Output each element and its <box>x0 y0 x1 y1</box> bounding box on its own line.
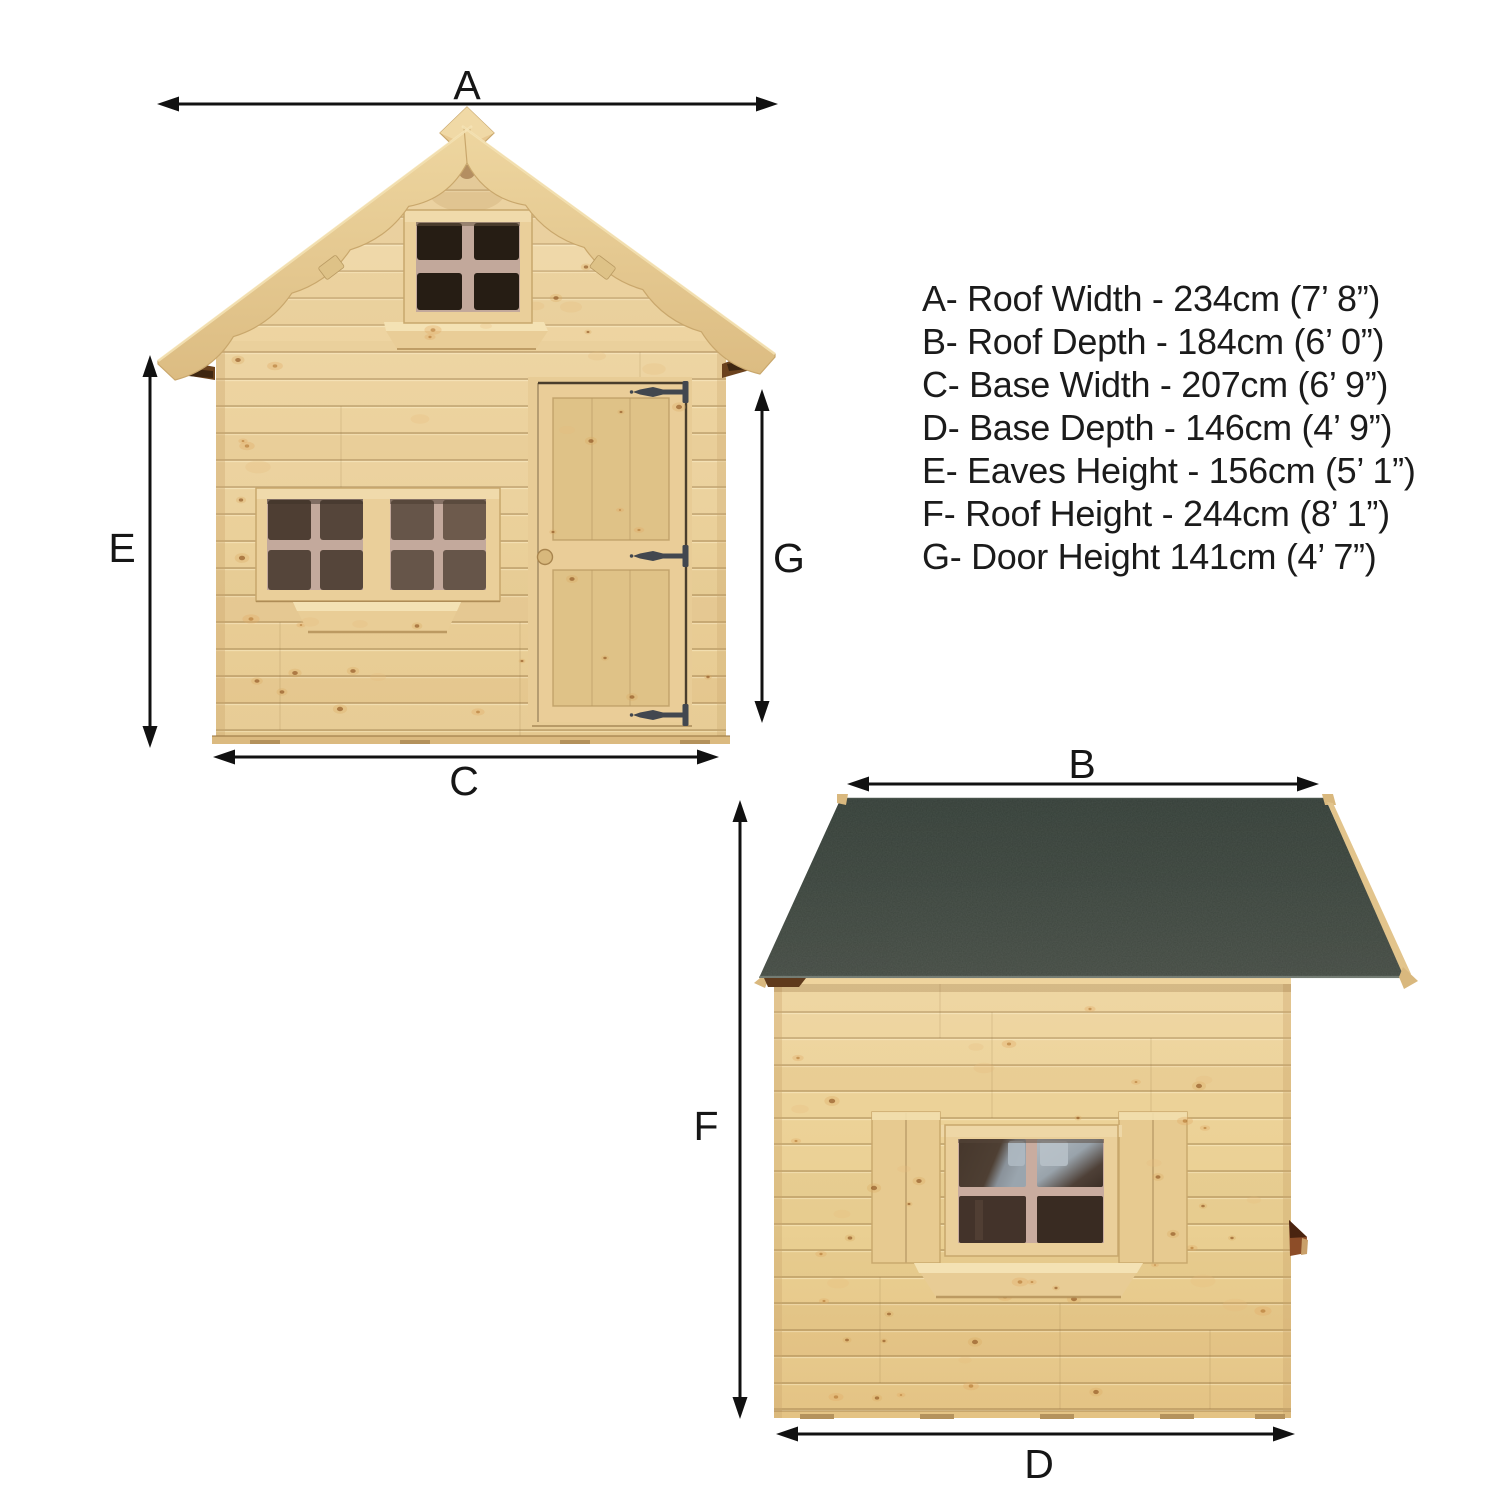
svg-text:E- Eaves Height - 156cm (5’ 1”: E- Eaves Height - 156cm (5’ 1”) <box>922 450 1416 491</box>
svg-text:A: A <box>453 62 481 108</box>
svg-text:D- Base Depth - 146cm (4’ 9”): D- Base Depth - 146cm (4’ 9”) <box>922 407 1392 448</box>
svg-text:D: D <box>1024 1441 1054 1487</box>
svg-text:B: B <box>1068 741 1095 787</box>
svg-text:G: G <box>773 535 805 581</box>
svg-text:F- Roof Height - 244cm (8’ 1”): F- Roof Height - 244cm (8’ 1”) <box>922 493 1390 534</box>
svg-text:A- Roof Width - 234cm (7’ 8”): A- Roof Width - 234cm (7’ 8”) <box>922 278 1380 319</box>
svg-text:C: C <box>449 758 479 804</box>
svg-text:B- Roof Depth - 184cm (6’ 0”): B- Roof Depth - 184cm (6’ 0”) <box>922 321 1384 362</box>
svg-text:G- Door Height 141cm (4’ 7”): G- Door Height 141cm (4’ 7”) <box>922 536 1376 577</box>
svg-text:E: E <box>108 525 135 571</box>
svg-text:C- Base Width - 207cm (6’ 9”): C- Base Width - 207cm (6’ 9”) <box>922 364 1388 405</box>
svg-text:F: F <box>693 1103 718 1149</box>
